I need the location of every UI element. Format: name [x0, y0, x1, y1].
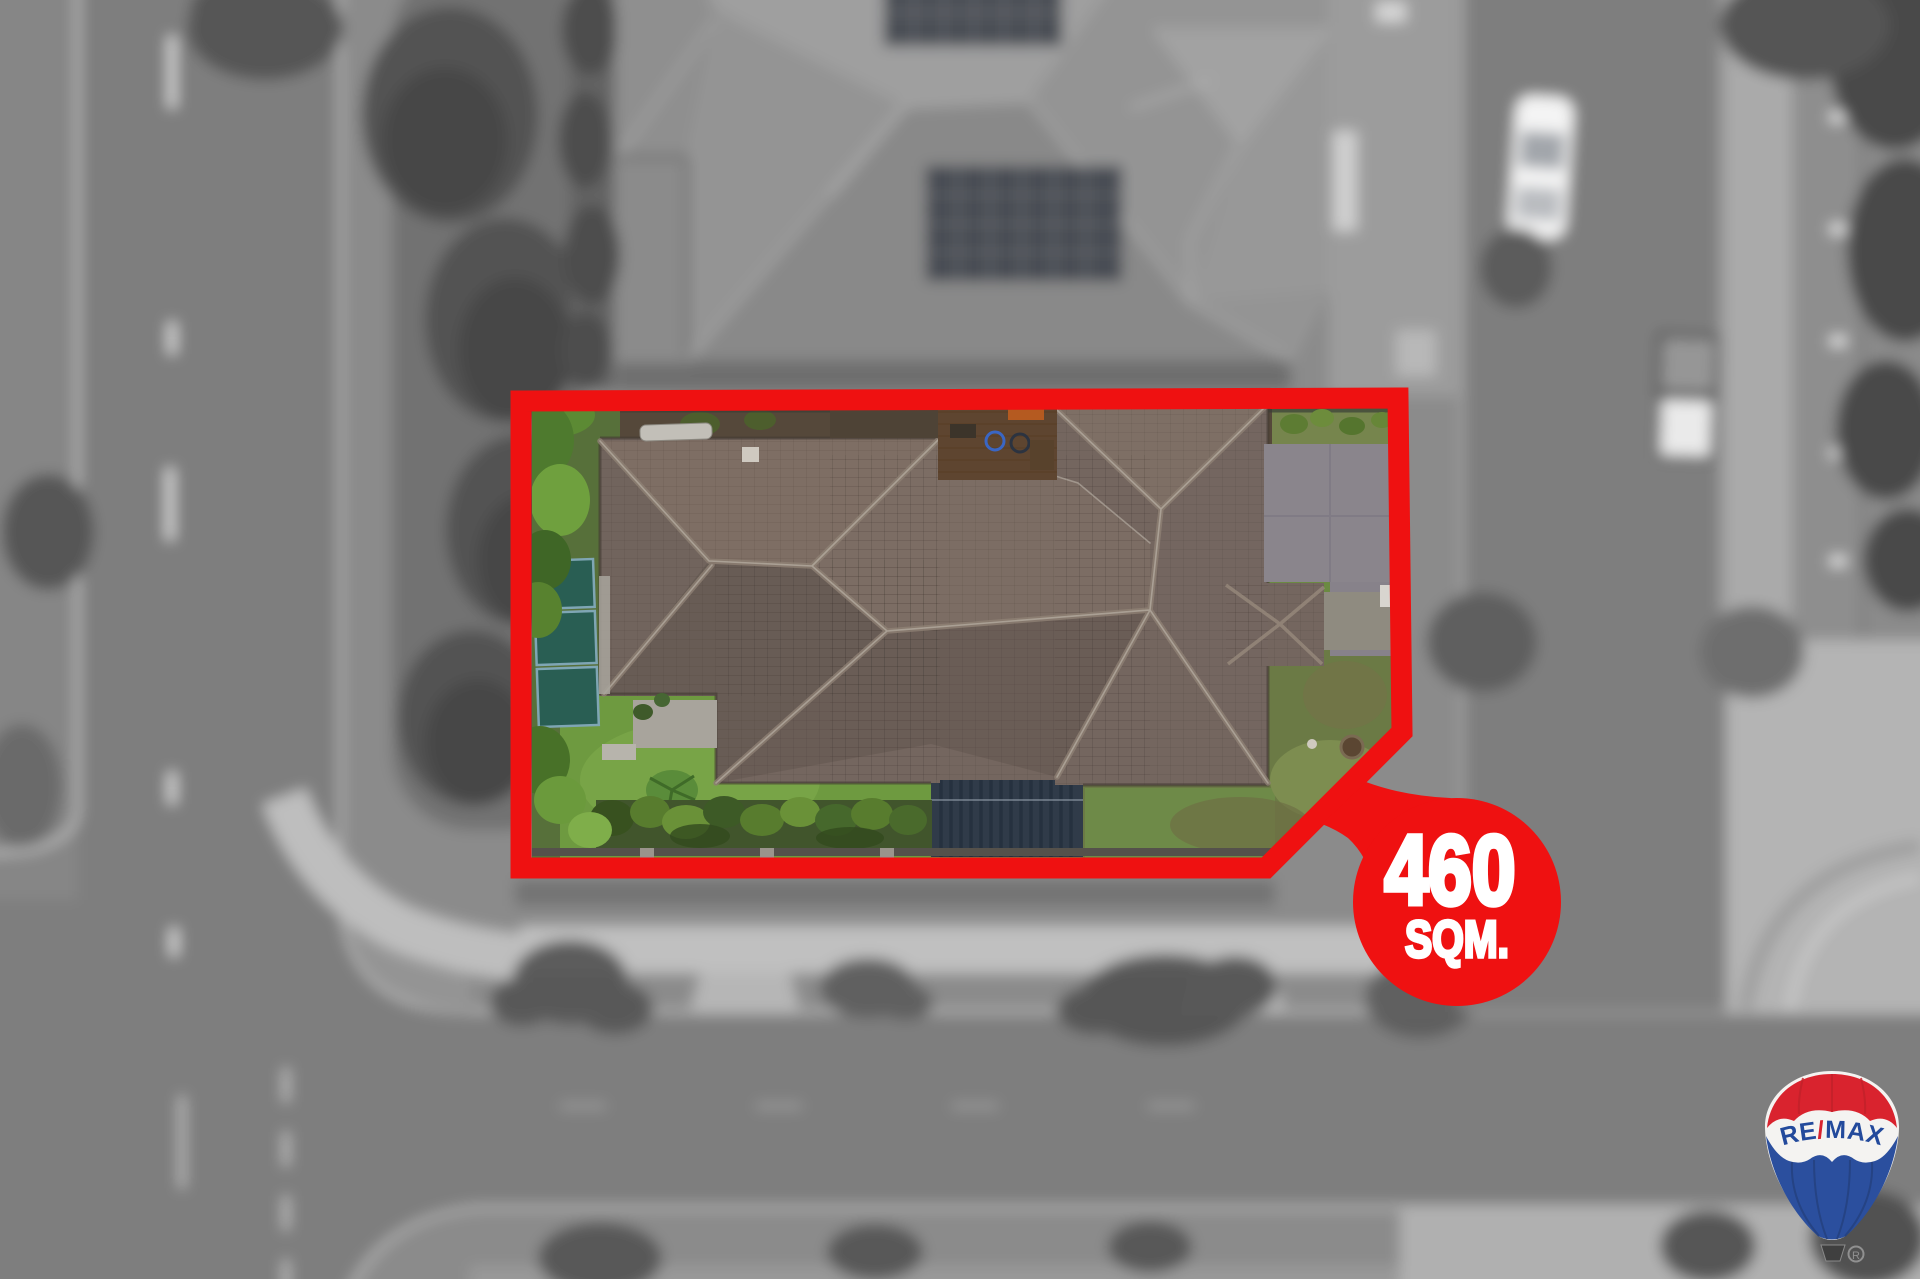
svg-text:SQM.: SQM.	[1405, 911, 1509, 969]
svg-text:460: 460	[1385, 815, 1516, 925]
svg-text:R: R	[1852, 1250, 1860, 1262]
